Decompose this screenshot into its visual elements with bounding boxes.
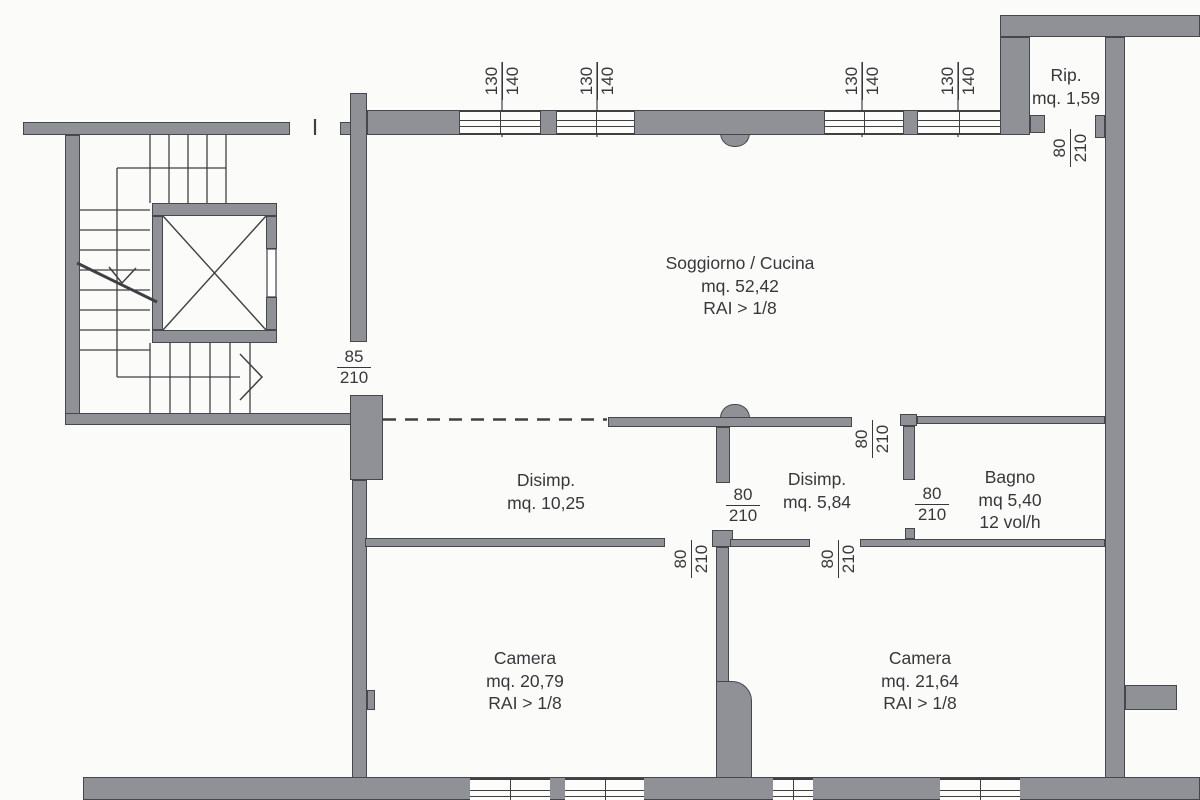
room-name: Disimp.: [466, 469, 626, 492]
wall-bagno-top: [917, 416, 1105, 424]
window-top-1: [460, 110, 540, 135]
window-bottom-4: [940, 778, 1020, 800]
window-bottom-3: [773, 778, 813, 800]
dim-width: 130: [578, 67, 595, 95]
window-mullion: [596, 112, 597, 133]
window-mullion: [864, 112, 865, 133]
wall-elevator-bottom: [152, 330, 277, 343]
window-mullion: [510, 780, 511, 800]
wall-elevator-left: [152, 216, 163, 330]
wall-elevator-right-b: [266, 297, 277, 330]
wall-bagno-cap: [900, 414, 917, 426]
wall-top-right: [1000, 15, 1200, 37]
room-label-soggiorno: Soggiorno / Cucina mq. 52,42 RAI > 1/8: [615, 252, 865, 320]
window-mullion: [959, 112, 960, 133]
wall-rip-nib: [1095, 115, 1105, 138]
window-top-2: [557, 110, 634, 135]
wall-mid-jamb: [716, 427, 730, 483]
window-mullion: [980, 780, 981, 800]
window-mullion: [605, 780, 606, 800]
column-bump-top: [720, 133, 750, 147]
wall-mid-b: [730, 539, 810, 547]
room-area: mq. 52,42: [615, 275, 865, 298]
dim-door-between-disimp: 80 210: [718, 486, 768, 524]
wall-top-pillar2: [903, 110, 918, 135]
dim-door-bagno: 80 210: [907, 485, 957, 523]
room-name: Soggiorno / Cucina: [615, 252, 865, 275]
room-label-bagno: Bagno mq 5,40 12 vol/h: [940, 466, 1080, 534]
wall-mid: [608, 417, 852, 427]
dim-door-camera2: 80 210: [819, 534, 857, 584]
dim-height: 210: [874, 425, 891, 453]
dim-height: 210: [729, 507, 757, 524]
dim-height: 140: [599, 67, 616, 95]
room-name: Camera: [445, 647, 605, 670]
dim-height: 140: [504, 67, 521, 95]
room-area: mq. 10,25: [466, 492, 626, 515]
room-name: Bagno: [940, 466, 1080, 489]
wall-stairwell-left: [65, 135, 80, 425]
wall-left-lower: [352, 480, 367, 778]
room-label-rip: Rip. mq. 1,59: [1006, 64, 1126, 109]
window-mullion: [500, 112, 501, 133]
dim-height: 210: [918, 506, 946, 523]
wall-camera-divider-thin: [716, 547, 729, 683]
dim-width: 80: [819, 550, 836, 569]
dim-height: 210: [1072, 134, 1089, 162]
room-note: RAI > 1/8: [615, 297, 865, 320]
room-note: RAI > 1/8: [445, 692, 605, 715]
dim-width: 130: [939, 67, 956, 95]
window-top-3: [825, 110, 903, 135]
dim-width: 80: [734, 486, 753, 503]
dim-window-2: 130 140: [578, 56, 616, 106]
room-note: 12 vol/h: [940, 511, 1080, 534]
wall-top-a: [367, 110, 460, 135]
window-bottom-1: [470, 778, 550, 800]
wall-stairwell-top: [23, 122, 290, 135]
wall-stairwell-bottom: [65, 413, 363, 425]
room-name: Camera: [840, 647, 1000, 670]
wall-right: [1105, 37, 1125, 778]
dim-height: 210: [340, 369, 368, 386]
column-bump-mid: [720, 404, 750, 418]
wall-entry-upper: [350, 93, 367, 342]
room-label-camera2: Camera mq. 21,64 RAI > 1/8: [840, 647, 1000, 715]
dim-door-rip: 80 210: [1051, 123, 1089, 173]
room-area: mq. 21,64: [840, 670, 1000, 693]
window-bottom-2: [565, 778, 644, 800]
dim-door-entry: 85 210: [329, 348, 379, 386]
room-area: mq 5,40: [940, 489, 1080, 512]
dim-width: 130: [483, 67, 500, 95]
wall-left-nib: [367, 690, 375, 710]
dim-width: 80: [853, 430, 870, 449]
window-top-4: [918, 110, 1000, 135]
wall-bagno-partition: [903, 426, 915, 480]
dim-width: 80: [1051, 139, 1068, 158]
room-label-camera1: Camera mq. 20,79 RAI > 1/8: [445, 647, 605, 715]
floor-plan: Soggiorno / Cucina mq. 52,42 RAI > 1/8 R…: [0, 0, 1200, 800]
dim-width: 80: [672, 550, 689, 569]
room-note: RAI > 1/8: [840, 692, 1000, 715]
wall-camera-divider-thick: [716, 681, 752, 778]
dim-door-disimp2-pass: 80 210: [853, 414, 891, 464]
room-name: Rip.: [1006, 64, 1126, 87]
wall-top-b: [634, 110, 825, 135]
dim-window-1: 130 140: [483, 56, 521, 106]
wall-right-stub: [1125, 685, 1177, 710]
dim-window-3: 130 140: [843, 56, 881, 106]
dim-height: 140: [864, 67, 881, 95]
wall-elevator-right-a: [266, 216, 277, 249]
window-mullion: [793, 780, 794, 800]
dim-window-4: 130 140: [939, 56, 977, 106]
dim-door-camera1: 80 210: [672, 534, 710, 584]
wall-disimp1-bottom: [365, 538, 665, 547]
wall-elevator-top: [152, 203, 277, 216]
room-label-disimp1: Disimp. mq. 10,25: [466, 469, 626, 514]
wall-entry-pilaster: [350, 395, 383, 480]
dim-width: 85: [345, 348, 364, 365]
dim-height: 210: [693, 545, 710, 573]
wall-mid-c: [860, 539, 1105, 547]
dim-width: 80: [923, 485, 942, 502]
wall-bagno-nib: [905, 528, 915, 539]
dim-height: 140: [960, 67, 977, 95]
dim-height: 210: [840, 545, 857, 573]
wall-rip-bottom: [1030, 115, 1045, 133]
dim-width: 130: [843, 67, 860, 95]
room-area: mq. 20,79: [445, 670, 605, 693]
wall-top-pillar1: [540, 110, 557, 135]
room-area: mq. 1,59: [1006, 87, 1126, 110]
